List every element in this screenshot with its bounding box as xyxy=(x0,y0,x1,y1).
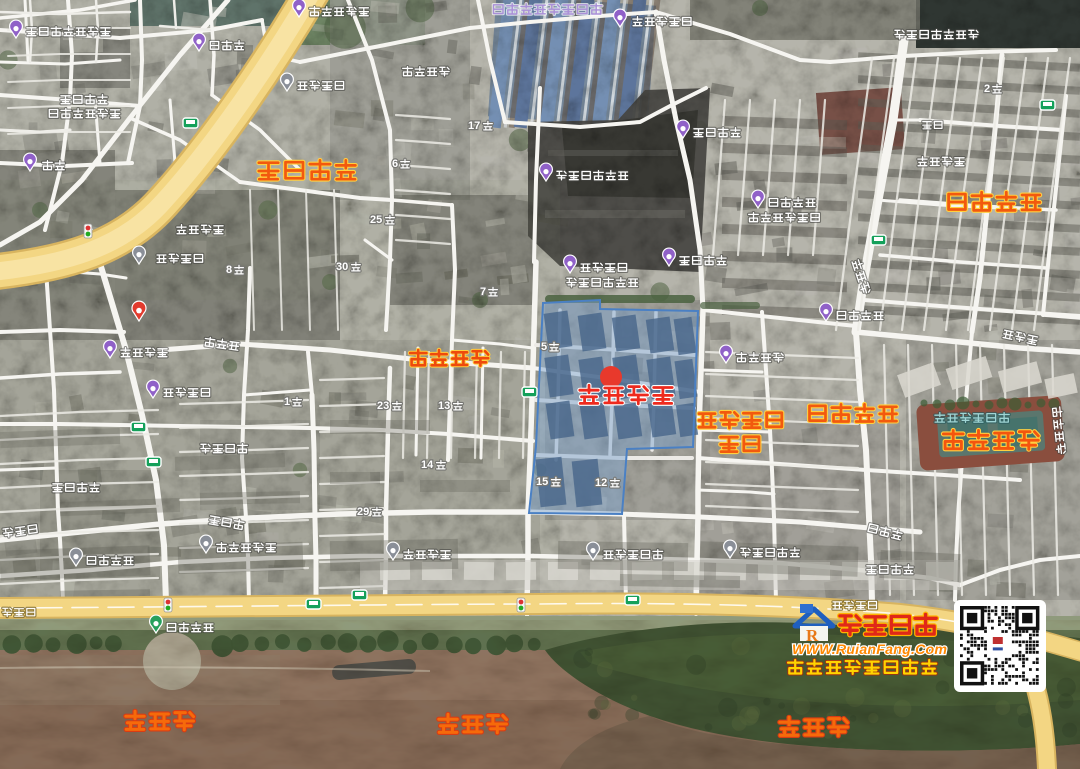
svg-text:23: 23 xyxy=(377,400,389,412)
svg-text:30: 30 xyxy=(336,261,348,273)
svg-text:13: 13 xyxy=(438,400,450,412)
svg-text:7: 7 xyxy=(480,286,486,298)
svg-text:25: 25 xyxy=(370,214,382,226)
svg-text:1: 1 xyxy=(284,396,290,408)
svg-text:17: 17 xyxy=(468,120,480,132)
svg-text:14: 14 xyxy=(421,459,434,471)
svg-text:6: 6 xyxy=(392,158,398,170)
svg-text:15: 15 xyxy=(536,476,548,488)
svg-text:WWW.RuianFang.Com: WWW.RuianFang.Com xyxy=(792,642,947,658)
svg-text:2: 2 xyxy=(984,83,990,95)
svg-text:5: 5 xyxy=(541,341,547,353)
svg-text:12: 12 xyxy=(595,477,607,489)
svg-text:8: 8 xyxy=(226,264,232,276)
svg-text:29: 29 xyxy=(357,506,369,518)
